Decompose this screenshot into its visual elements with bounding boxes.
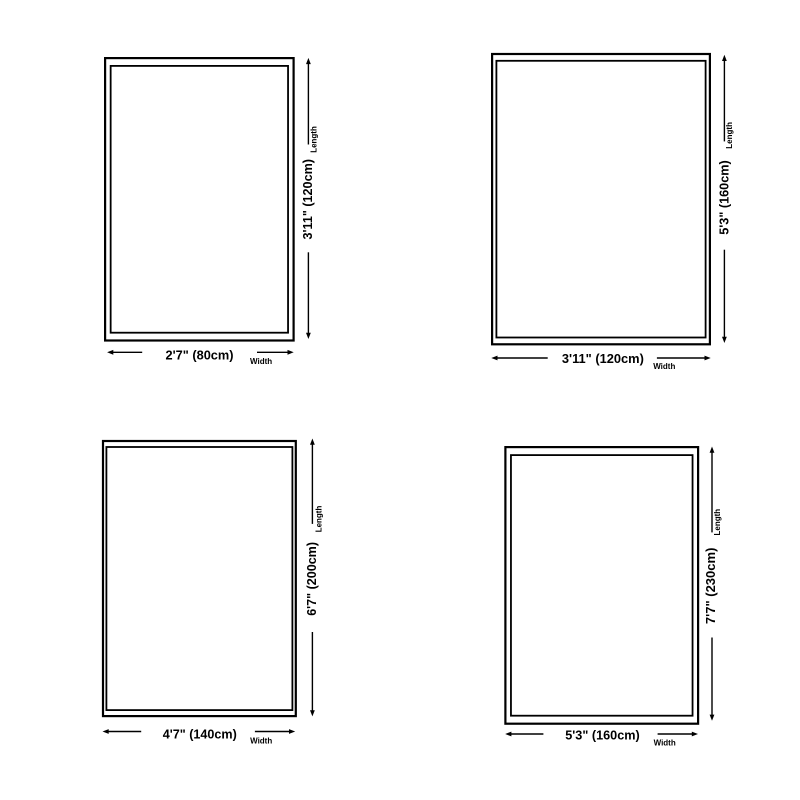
svg-text:Length: Length	[314, 506, 323, 533]
svg-text:Length: Length	[725, 122, 734, 149]
svg-text:Width: Width	[654, 739, 676, 748]
svg-text:3'11" (120cm): 3'11" (120cm)	[300, 159, 315, 240]
svg-text:2'7" (80cm): 2'7" (80cm)	[166, 348, 234, 363]
svg-text:6'7" (200cm): 6'7" (200cm)	[304, 542, 319, 616]
svg-text:4'7" (140cm): 4'7" (140cm)	[163, 726, 237, 741]
svg-text:7'7" (230cm): 7'7" (230cm)	[703, 548, 718, 625]
svg-text:5'3" (160cm): 5'3" (160cm)	[565, 728, 640, 743]
svg-text:Width: Width	[653, 362, 675, 371]
svg-text:Length: Length	[310, 126, 319, 153]
svg-text:Width: Width	[250, 737, 272, 746]
svg-text:3'11" (120cm): 3'11" (120cm)	[562, 351, 644, 366]
svg-text:Length: Length	[713, 509, 722, 536]
svg-text:Width: Width	[250, 357, 272, 366]
svg-text:5'3" (160cm): 5'3" (160cm)	[717, 160, 732, 235]
